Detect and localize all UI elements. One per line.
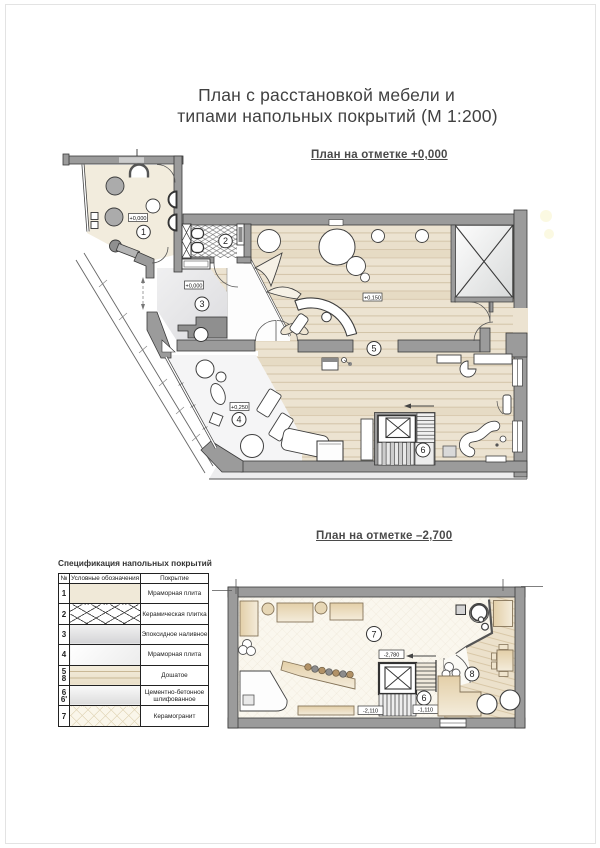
svg-text:6: 6 — [420, 445, 425, 455]
svg-text:+0,000: +0,000 — [186, 283, 203, 289]
svg-text:4: 4 — [236, 415, 241, 425]
svg-text:2: 2 — [223, 236, 228, 246]
svg-text:-1,110: -1,110 — [418, 708, 433, 714]
svg-text:3: 3 — [199, 299, 204, 309]
svg-text:1: 1 — [141, 227, 146, 237]
svg-text:6: 6 — [421, 693, 426, 703]
svg-text:8: 8 — [469, 669, 474, 679]
svg-text:7: 7 — [371, 629, 376, 639]
svg-text:-2,780: -2,780 — [384, 653, 400, 659]
svg-text:+0,000: +0,000 — [130, 216, 147, 222]
svg-text:+0,250: +0,250 — [231, 405, 248, 411]
svg-text:+0,150: +0,150 — [364, 295, 381, 301]
svg-text:-2,110: -2,110 — [363, 709, 378, 715]
svg-text:5: 5 — [371, 344, 376, 354]
